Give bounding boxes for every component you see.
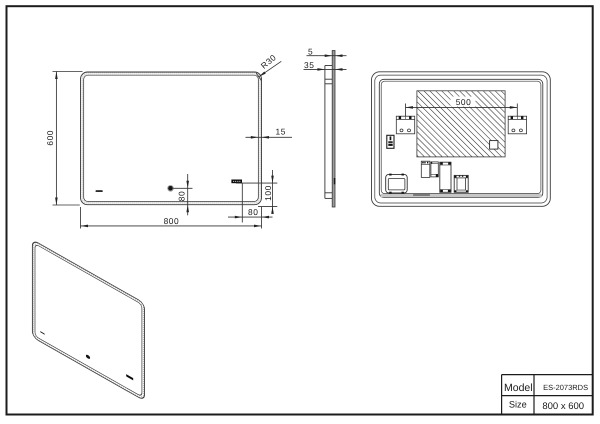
- svg-text:Model: Model: [504, 382, 533, 394]
- svg-text:80: 80: [176, 191, 186, 201]
- svg-text:500: 500: [456, 97, 472, 107]
- svg-text:600: 600: [45, 130, 55, 146]
- svg-text:35: 35: [304, 60, 314, 70]
- svg-text:100: 100: [263, 185, 273, 201]
- svg-text:800 x 600: 800 x 600: [542, 401, 584, 412]
- svg-text:80: 80: [248, 207, 258, 217]
- svg-text:Size: Size: [509, 400, 527, 410]
- svg-text:5: 5: [308, 46, 313, 56]
- svg-text:15: 15: [275, 127, 285, 137]
- svg-text:800: 800: [164, 216, 180, 226]
- svg-text:ES-2073RDS: ES-2073RDS: [543, 383, 588, 392]
